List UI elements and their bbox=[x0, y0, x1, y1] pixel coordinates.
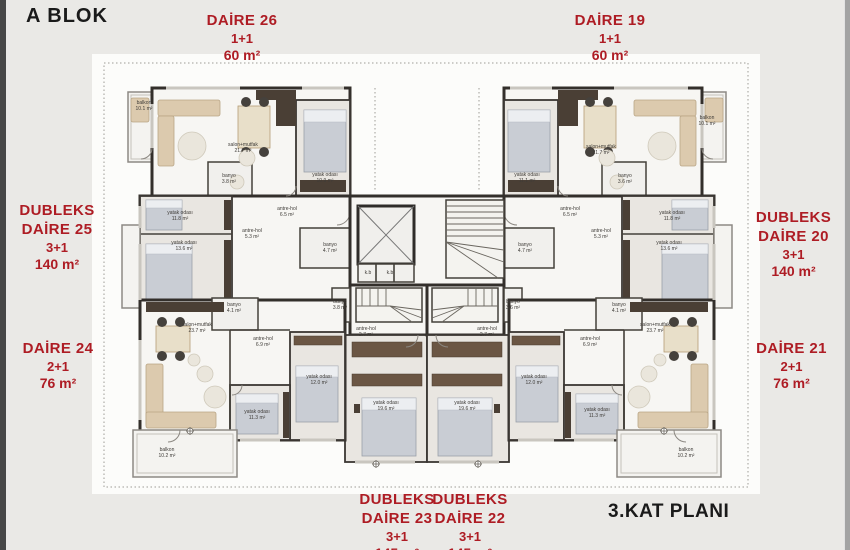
room-label: k.b bbox=[365, 270, 372, 276]
block-title: A BLOK bbox=[26, 5, 108, 28]
room-label: banyo4.1 m² bbox=[612, 302, 627, 314]
unit-label-daire-21: DAİRE 21 2+1 76 m² bbox=[735, 340, 848, 393]
room-label: banyo3.6 m² bbox=[506, 299, 521, 311]
room-label: banyo4.7 m² bbox=[323, 242, 338, 254]
room-label: antre-hol6.9 m² bbox=[253, 336, 273, 348]
room-label: antre-hol6.9 m² bbox=[580, 336, 600, 348]
elevator bbox=[358, 206, 414, 264]
room-label: antre-hol5.3 m² bbox=[242, 228, 262, 240]
plan-title: 3.KAT PLANI bbox=[608, 501, 729, 523]
room-label: antre-hol6.5 m² bbox=[560, 206, 580, 218]
unit-label-daire-24: DAİRE 24 2+1 76 m² bbox=[2, 340, 114, 393]
unit-label-dubleks-daire-25: DUBLEKS DAİRE 25 3+1 140 m² bbox=[0, 202, 114, 273]
room-label: banyo3.8 m² bbox=[333, 299, 348, 311]
unit-label-daire-26: DAİRE 26 1+1 60 m² bbox=[183, 12, 301, 65]
room-label: banyo4.7 m² bbox=[518, 242, 533, 254]
main-staircase bbox=[446, 200, 504, 278]
room-label: balkon10.2 m² bbox=[159, 447, 176, 459]
floor-plan-page: balkon10.1 m²salon+mutfak21.7 m²yatak od… bbox=[0, 0, 850, 550]
room-label: balkon10.1 m² bbox=[136, 100, 153, 112]
room-label: antre-hol2.7 m² bbox=[356, 326, 376, 338]
room-label: antre-hol5.3 m² bbox=[591, 228, 611, 240]
room-label: antre-hol2.7 m² bbox=[477, 326, 497, 338]
room-label: banyo3.6 m² bbox=[618, 173, 633, 185]
room-label: antre-hol6.5 m² bbox=[277, 206, 297, 218]
room-label: balkon10.2 m² bbox=[678, 447, 695, 459]
room-label: balkon10.1 m² bbox=[699, 115, 716, 127]
unit-label-dubleks-daire-20: DUBLEKS DAİRE 20 3+1 140 m² bbox=[737, 209, 850, 280]
scan-edge-left bbox=[0, 0, 6, 550]
room-label: banyo3.8 m² bbox=[222, 173, 237, 185]
room-label: k.b bbox=[387, 270, 394, 276]
unit-label-daire-19: DAİRE 19 1+1 60 m² bbox=[551, 12, 669, 65]
central-core bbox=[350, 196, 504, 285]
room-label: banyo4.1 m² bbox=[227, 302, 242, 314]
floor-plan-drawing: balkon10.1 m²salon+mutfak21.7 m²yatak od… bbox=[0, 0, 850, 550]
unit-label-dubleks-daire-22: DUBLEKS DAİRE 22 3+1 145 m² bbox=[414, 491, 526, 550]
